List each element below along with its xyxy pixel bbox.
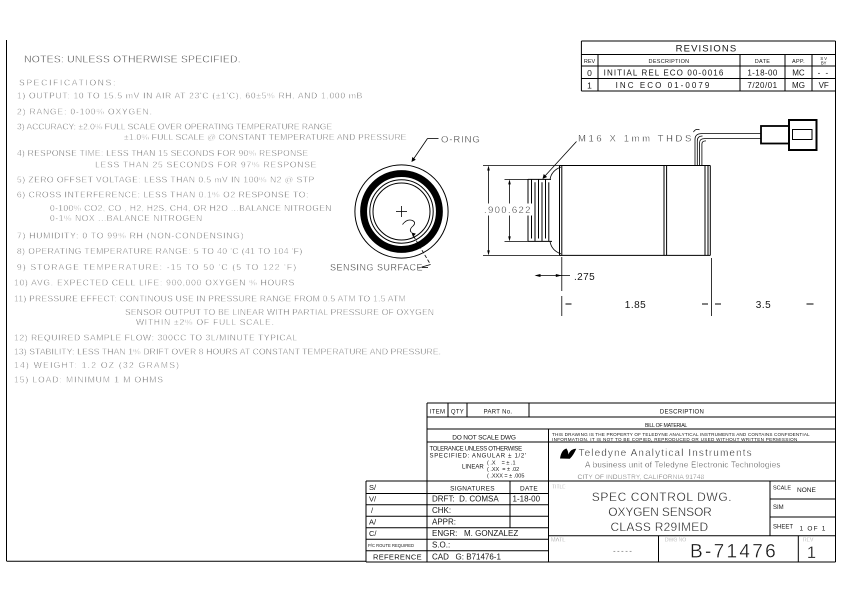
svg-text:DESCRIPTION: DESCRIPTION: [649, 59, 690, 65]
svg-text:LINEAR: LINEAR: [462, 465, 484, 471]
svg-text:- -: - -: [818, 69, 830, 78]
svg-text:TITLE: TITLE: [552, 485, 566, 491]
svg-text:REFERENCE: REFERENCE: [373, 553, 422, 562]
svg-text:DATE: DATE: [755, 59, 770, 65]
svg-text:1.85: 1.85: [625, 300, 646, 311]
svg-text:0-100% CO2, CO , H2, H2S, CH4,: 0-100% CO2, CO , H2, H2S, CH4, OR H2O ..…: [50, 203, 332, 213]
svg-text:DRFT: D. COMSA: DRFT: D. COMSA: [432, 494, 499, 503]
svg-text:7/20/01: 7/20/01: [747, 81, 777, 90]
svg-text:( .X = ± .1: ( .X = ± .1: [487, 461, 516, 467]
svg-text:APP.: APP.: [792, 59, 805, 65]
svg-text:CITY OF INDUSTRY, CALIFORNIA 9: CITY OF INDUSTRY, CALIFORNIA 91748: [578, 474, 705, 481]
svg-text:13) STABILITY: LESS THAN 1% DR: 13) STABILITY: LESS THAN 1% DRIFT OVER 8…: [14, 347, 441, 357]
svg-text:CHK:: CHK:: [432, 506, 451, 515]
svg-text:CLASS R29IMED: CLASS R29IMED: [611, 520, 709, 534]
svg-text:O-RING: O-RING: [441, 135, 481, 146]
svg-text:BY: BY: [821, 61, 827, 66]
svg-text:NONE: NONE: [797, 487, 816, 494]
svg-text:±1.0% FULL SCALE @ CONSTANT TE: ±1.0% FULL SCALE @ CONSTANT TEMPERATURE …: [124, 132, 407, 142]
svg-text:( .XXX = ± .005: ( .XXX = ± .005: [487, 474, 524, 480]
svg-text:REV: REV: [584, 59, 596, 65]
svg-text:12) REQUIRED SAMPLE FLOW: 300C: 12) REQUIRED SAMPLE FLOW: 300CC TO 3L/MI…: [14, 333, 298, 343]
svg-text:14) WEIGHT: 1.2 OZ (32 GRAMS): 14) WEIGHT: 1.2 OZ (32 GRAMS): [14, 360, 180, 370]
svg-text:QTY: QTY: [451, 410, 464, 416]
svg-text:.900.622: .900.622: [484, 205, 532, 216]
svg-text:WITHIN ±2% OF FULL SCALE.: WITHIN ±2% OF FULL SCALE.: [136, 317, 275, 327]
svg-text:DATE: DATE: [520, 486, 538, 493]
svg-text:OXYGEN SENSOR: OXYGEN SENSOR: [608, 505, 712, 519]
svg-text:3.5: 3.5: [756, 300, 771, 311]
svg-text:9) STORAGE TEMPERATURE: -15 TO: 9) STORAGE TEMPERATURE: -15 TO 50 'C (5 …: [17, 262, 297, 272]
svg-text:DWG NO: DWG NO: [665, 538, 686, 544]
svg-text:S.O.:: S.O.:: [432, 540, 450, 549]
svg-text:SPECIFICATIONS:: SPECIFICATIONS:: [19, 78, 117, 88]
svg-text:ENGR: M. GONZALEZ: ENGR: M. GONZALEZ: [432, 529, 518, 538]
svg-text:DO NOT SCALE DWG: DO NOT SCALE DWG: [452, 435, 516, 442]
svg-text:0-1% NOX ...BALANCE NITROGEN: 0-1% NOX ...BALANCE NITROGEN: [50, 213, 203, 223]
svg-text:6) CROSS INTERFERENCE: LESS TH: 6) CROSS INTERFERENCE: LESS THAN 0.1% O2…: [17, 190, 309, 200]
svg-text:.275: .275: [574, 272, 595, 283]
svg-text:CAD G: B71476-1: CAD G: B71476-1: [432, 553, 501, 562]
svg-text:M16 X 1mm THDS: M16 X 1mm THDS: [578, 134, 694, 145]
svg-text:C/: C/: [369, 529, 377, 538]
svg-text:PART No.: PART No.: [484, 410, 513, 416]
svg-text:REVISIONS: REVISIONS: [676, 44, 738, 55]
svg-text:-----: -----: [613, 546, 633, 556]
svg-text:INC ECO 01-0079: INC ECO 01-0079: [616, 81, 712, 90]
svg-text:INFORMATION. IT IS NOT TO BE C: INFORMATION. IT IS NOT TO BE COPIED, REP…: [552, 437, 798, 442]
svg-text:SCALE: SCALE: [773, 486, 791, 492]
svg-text:1: 1: [587, 80, 592, 90]
svg-text:10) AVG. EXPECTED CELL LIFE: 9: 10) AVG. EXPECTED CELL LIFE: 900,000 OXY…: [14, 278, 295, 288]
svg-text:SPEC CONTROL DWG.: SPEC CONTROL DWG.: [592, 490, 732, 504]
svg-text:8) OPERATING TEMPERATURE RANGE: 8) OPERATING TEMPERATURE RANGE: 5 TO 40 …: [17, 246, 303, 256]
svg-text:A/: A/: [369, 517, 377, 526]
svg-text:11) PRESSURE EFFECT: CONTINOUS: 11) PRESSURE EFFECT: CONTINOUS USE IN PR…: [14, 294, 406, 304]
svg-text:BILL OF MATERIAL: BILL OF MATERIAL: [645, 423, 687, 429]
svg-text:P/C ROUTE REQUIRED: P/C ROUTE REQUIRED: [368, 543, 414, 548]
svg-text:SIGNATURES: SIGNATURES: [450, 486, 495, 493]
svg-text:1-18-00: 1-18-00: [513, 494, 541, 503]
svg-text:15) LOAD: MINIMUM 1 M OHMS: 15) LOAD: MINIMUM 1 M OHMS: [14, 375, 164, 385]
svg-text:5) ZERO OFFSET VOLTAGE: LESS T: 5) ZERO OFFSET VOLTAGE: LESS THAN 0.5 mV…: [17, 175, 315, 185]
svg-text:LESS THAN 25 SECONDS FOR 97% R: LESS THAN 25 SECONDS FOR 97% RESPONSE: [95, 160, 317, 170]
svg-text:1-18-00: 1-18-00: [747, 69, 778, 78]
svg-text:TOLERANCE UNLESS OTHERWISE: TOLERANCE UNLESS OTHERWISE: [430, 447, 523, 453]
svg-text:DESCRIPTION: DESCRIPTION: [660, 410, 704, 416]
svg-text:7) HUMIDITY: 0 TO 99% RH (NON-: 7) HUMIDITY: 0 TO 99% RH (NON-CONDENSING…: [17, 231, 244, 241]
svg-text:SHEET: SHEET: [773, 525, 793, 531]
svg-text:1 OF 1: 1 OF 1: [800, 525, 827, 532]
svg-text:SENSING SURFACE: SENSING SURFACE: [330, 263, 423, 273]
svg-text:B-71476: B-71476: [690, 542, 778, 563]
svg-text:MATL: MATL: [551, 538, 565, 544]
svg-text:SIM: SIM: [773, 505, 784, 511]
svg-text:SPECIFIED: ANGULAR ± 1/2': SPECIFIED: ANGULAR ± 1/2': [430, 454, 527, 460]
svg-text:4) RESPONSE TIME: LESS THAN 15: 4) RESPONSE TIME: LESS THAN 15 SECONDS F…: [17, 148, 308, 158]
svg-text:1) OUTPUT: 10 TO 15.5 mV IN AI: 1) OUTPUT: 10 TO 15.5 mV IN AIR AT 23'C …: [17, 91, 363, 101]
svg-text:SENSOR OUTPUT TO BE LINEAR WIT: SENSOR OUTPUT TO BE LINEAR WITH PARTIAL …: [125, 307, 434, 317]
svg-text:0: 0: [587, 68, 592, 78]
svg-text:A business unit of Teledyne El: A business unit of Teledyne Electronic T…: [585, 461, 781, 470]
svg-text:NOTES: UNLESS OTHERWISE SPECIF: NOTES: UNLESS OTHERWISE SPECIFIED.: [24, 54, 241, 66]
svg-text:V/: V/: [369, 494, 377, 503]
svg-text:MC: MC: [792, 69, 805, 78]
svg-text:1: 1: [807, 543, 816, 562]
svg-text:( .XX = ± .02: ( .XX = ± .02: [487, 467, 519, 473]
svg-text:APPR:: APPR:: [432, 517, 456, 526]
svg-text:Teledyne Analytical Instrument: Teledyne Analytical Instruments: [579, 448, 753, 459]
svg-text:2) RANGE: 0-100% OXYGEN.: 2) RANGE: 0-100% OXYGEN.: [17, 107, 153, 117]
svg-text:VF: VF: [819, 81, 829, 90]
svg-text:MG: MG: [792, 81, 805, 90]
svg-text:ITEM: ITEM: [430, 410, 446, 416]
svg-text:S/: S/: [369, 483, 377, 492]
svg-text:INITIAL REL ECO 00-0016: INITIAL REL ECO 00-0016: [604, 69, 725, 78]
svg-text:3) ACCURACY: ±2.0% FULL SCALE: 3) ACCURACY: ±2.0% FULL SCALE OVER OPERA…: [17, 122, 332, 132]
